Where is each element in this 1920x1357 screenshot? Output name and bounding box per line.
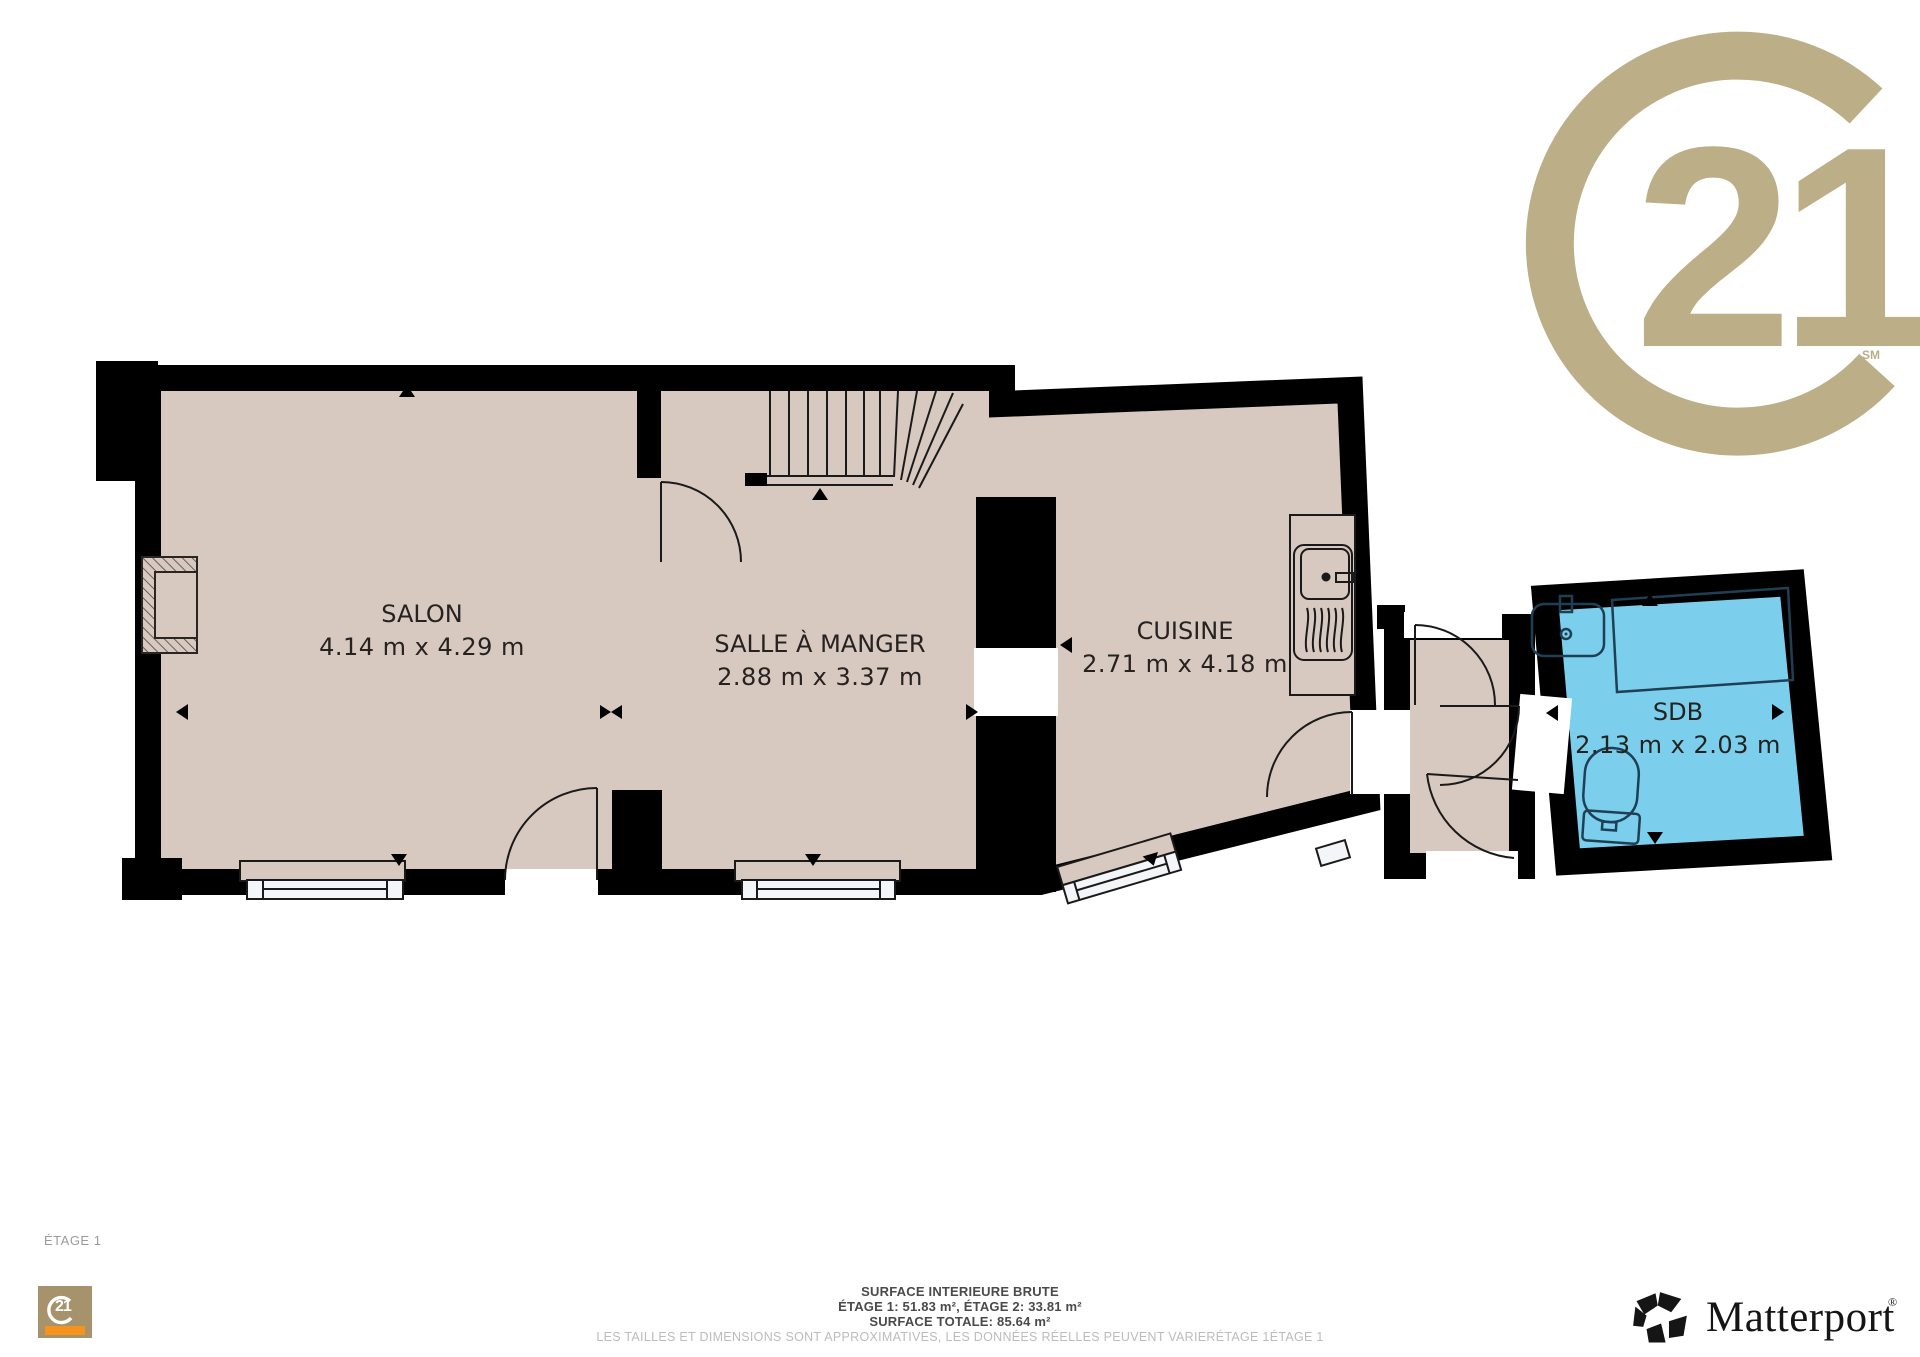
fireplace — [142, 557, 197, 653]
wall-salon-divider-bottom — [612, 790, 662, 893]
room-dims: 2.71 m x 4.18 m — [1082, 648, 1288, 681]
room-name: CUISINE — [1082, 615, 1288, 648]
room-label-sdb: SDB 2.13 m x 2.03 m — [1575, 696, 1781, 762]
kitchen-sink-unit — [1290, 515, 1355, 695]
surface-etages: ÉTAGE 1: 51.83 m², ÉTAGE 2: 33.81 m² — [0, 1299, 1920, 1314]
window-cuisine-small — [1316, 840, 1350, 866]
room-label-salle-a-manger: SALLE À MANGER 2.88 m x 3.37 m — [714, 628, 925, 694]
wall-corner-bottomleft — [122, 858, 182, 900]
wall-salon-divider-top — [637, 365, 661, 478]
doorway-salon-exterior — [505, 869, 598, 899]
room-dims: 2.88 m x 3.37 m — [714, 661, 925, 694]
century21-logo-sm: SM — [1862, 348, 1880, 362]
doorway-hall-sdb — [1512, 694, 1572, 794]
room-name: SALON — [319, 598, 525, 631]
floorplan-drawing — [0, 0, 1920, 1357]
disclaimer-text: LES TAILLES ET DIMENSIONS SONT APPROXIMA… — [0, 1329, 1920, 1345]
room-label-salon: SALON 4.14 m x 4.29 m — [319, 598, 525, 664]
doorway-hall-bottom — [1426, 851, 1518, 881]
room-dims: 4.14 m x 4.29 m — [319, 631, 525, 664]
surface-summary: SURFACE INTERIEURE BRUTE ÉTAGE 1: 51.83 … — [0, 1284, 1920, 1345]
surface-title: SURFACE INTERIEURE BRUTE — [0, 1284, 1920, 1299]
surface-totale: SURFACE TOTALE: 85.64 m² — [0, 1314, 1920, 1329]
window-salon — [240, 861, 405, 899]
wall-entry-step — [1377, 605, 1405, 629]
doorway-cuisine-hall — [1350, 710, 1410, 794]
doorway-sam-cuisine — [974, 648, 1058, 716]
floorplan-page: { "branding": { "century21": { "number":… — [0, 0, 1920, 1357]
floor-label: ÉTAGE 1 — [44, 1233, 101, 1248]
room-name: SDB — [1575, 696, 1781, 729]
room-label-cuisine: CUISINE 2.71 m x 4.18 m — [1082, 615, 1288, 681]
wall-pier-topleft — [96, 361, 158, 481]
room-name: SALLE À MANGER — [714, 628, 925, 661]
stair-wall-stub — [745, 473, 767, 486]
room-dims: 2.13 m x 2.03 m — [1575, 729, 1781, 762]
window-salle-a-manger — [735, 861, 900, 899]
